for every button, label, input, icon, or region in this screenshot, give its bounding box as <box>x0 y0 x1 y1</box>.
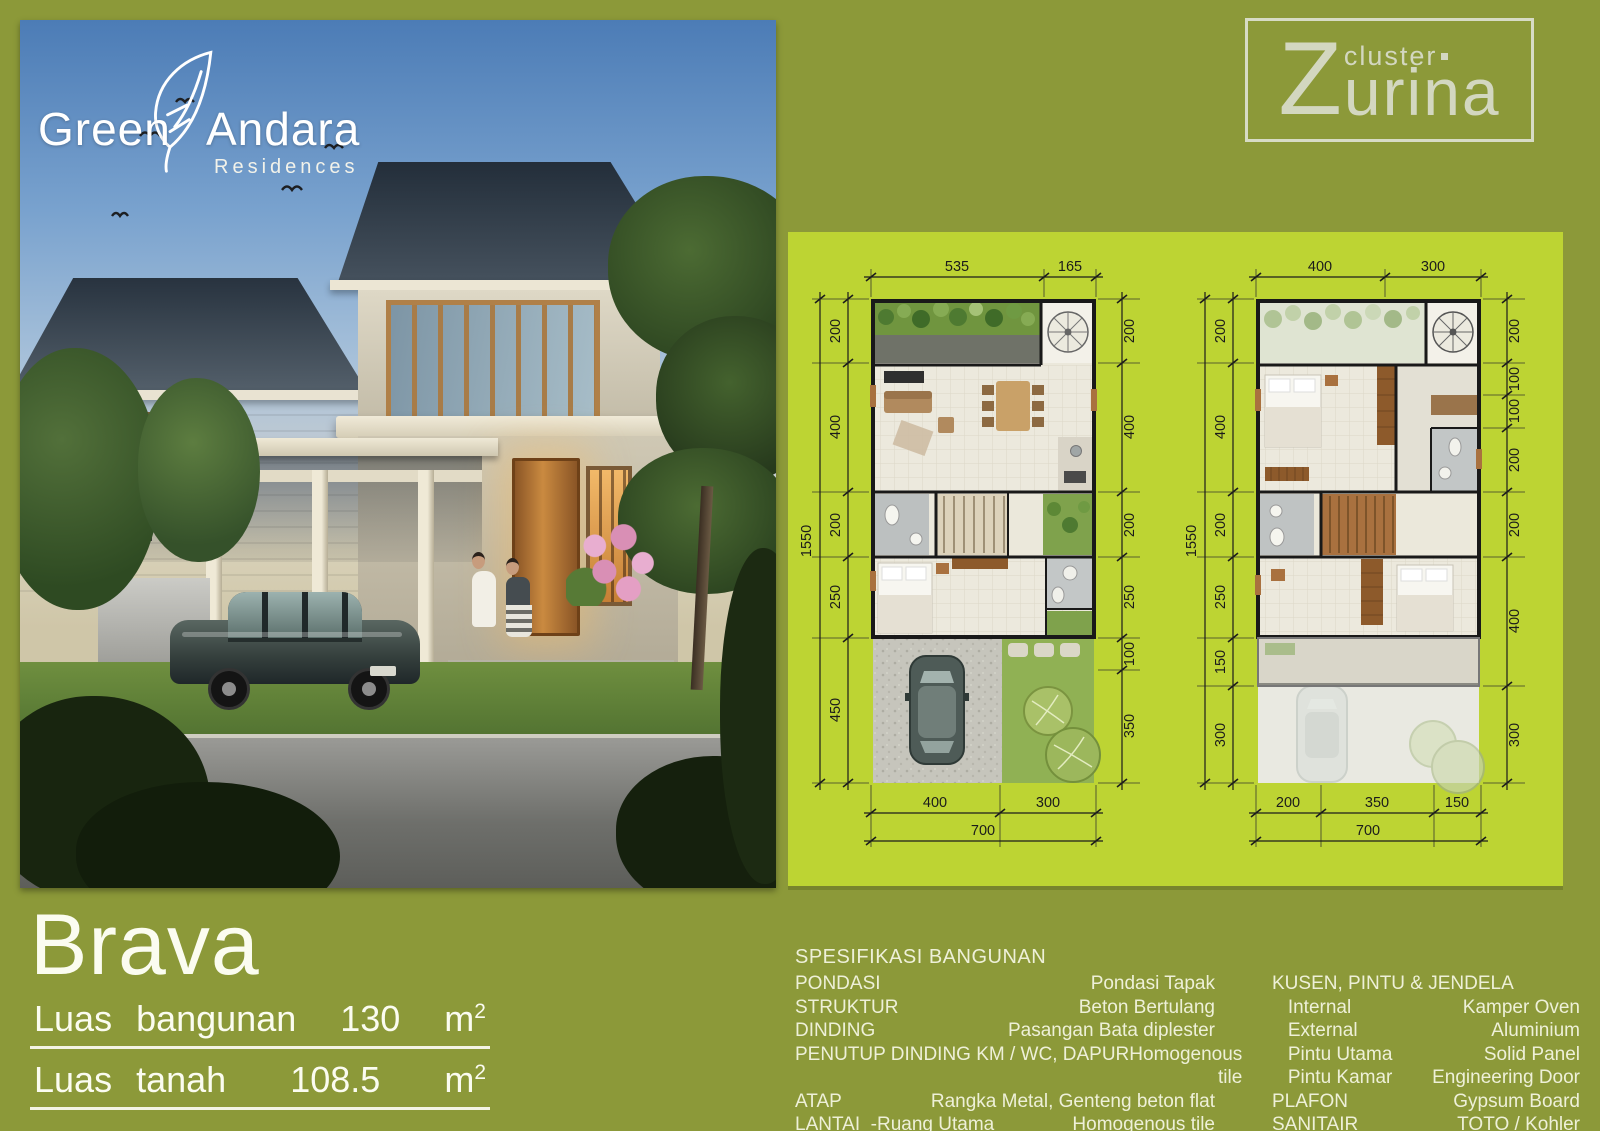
dim-label: 200 <box>1507 319 1523 343</box>
unit-name: Brava <box>30 902 490 988</box>
car-top-view <box>905 656 969 764</box>
area-unit: m2 <box>444 1059 486 1101</box>
carport-roof-ghost <box>1258 686 1484 793</box>
dim-label: 300 <box>1213 723 1229 747</box>
dim-label: 400 <box>1507 609 1523 633</box>
dim-label: 300 <box>1507 723 1523 747</box>
dim-label: 350 <box>1365 795 1389 811</box>
brand-word-andara: Andara <box>206 102 360 156</box>
car-wheel <box>208 668 250 710</box>
unit-title-block: Brava Luas bangunan 130 m2 Luas tanah 10… <box>30 902 490 1110</box>
person-head <box>506 558 519 575</box>
spiral-stair <box>1433 312 1473 352</box>
spec-row: Pintu UtamaSolid Panel <box>1272 1043 1580 1067</box>
dim-label: 150 <box>1213 650 1229 674</box>
person-skirt <box>506 605 532 637</box>
zurina-initial: Z <box>1278 39 1342 120</box>
area-label: Luas bangunan <box>34 998 296 1040</box>
area-value: 108.5 <box>290 1059 380 1101</box>
spec-row: LANTAI -Ruang UtamaHomogenous tile <box>795 1113 1215 1131</box>
tree <box>138 378 260 562</box>
canopy-slab <box>336 416 692 438</box>
dim-label: 400 <box>1122 415 1138 439</box>
dim-label: 200 <box>1507 513 1523 537</box>
car-hub <box>222 682 236 696</box>
person-dark-top <box>506 558 532 637</box>
spec-row: SANITAIRTOTO / Kohler <box>1272 1113 1580 1131</box>
cluster-zurina-badge: Z cluster urina <box>1245 18 1534 142</box>
dim-label: 200 <box>1213 513 1229 537</box>
dim-label: 200 <box>828 513 844 537</box>
area-unit: m2 <box>444 998 486 1040</box>
dim-label: 100 <box>1122 642 1138 666</box>
dim-label: 200 <box>1122 513 1138 537</box>
person-top <box>506 577 530 605</box>
area-row-building: Luas bangunan 130 m2 <box>30 988 490 1049</box>
person-white-dress <box>472 552 496 627</box>
dim-label: 300 <box>1421 259 1445 275</box>
dim-label: 400 <box>1308 259 1332 275</box>
spec-row: STRUKTURBeton Bertulang <box>795 996 1215 1020</box>
spec-row: PENUTUP DINDING KM / WC, DAPURHomogenous… <box>795 1043 1215 1090</box>
dim-label: 535 <box>945 259 969 275</box>
dim-label: 200 <box>1122 319 1138 343</box>
license-plate <box>370 666 396 676</box>
dim-label: 165 <box>1058 259 1082 275</box>
specs-left-column: PONDASIPondasi Tapak STRUKTURBeton Bertu… <box>795 972 1215 1131</box>
dim-label: 350 <box>1122 714 1138 738</box>
spec-row: ATAPRangka Metal, Genteng beton flat <box>795 1090 1215 1114</box>
person-dress <box>472 571 496 627</box>
pergola-post <box>418 470 434 682</box>
car-highlight <box>182 632 402 637</box>
spiral-stair <box>1048 312 1088 352</box>
dim-label: 400 <box>923 795 947 811</box>
dim-label: 1550 <box>799 525 815 557</box>
dim-label: 100 <box>1507 367 1523 391</box>
area-label: Luas tanah <box>34 1059 226 1101</box>
dim-label: 250 <box>828 585 844 609</box>
dim-label: 450 <box>828 698 844 722</box>
area-row-land: Luas tanah 108.5 m2 <box>30 1049 490 1110</box>
house-render-photo: Green Andara Residences <box>20 20 776 888</box>
floorplan-panel: 535 165 1550 200 400 200 250 450 200 400… <box>788 232 1563 886</box>
car-hub <box>362 682 376 696</box>
green-andara-logo: Green Andara Residences <box>38 56 398 206</box>
dim-label: 150 <box>1445 795 1469 811</box>
main-house-upper-window <box>386 300 600 426</box>
dim-label: 300 <box>1036 795 1060 811</box>
car <box>170 592 420 710</box>
upper-floor-plan: 400 300 1550 200 400 200 250 150 300 200… <box>1181 239 1541 879</box>
dim-label: 700 <box>1356 823 1380 839</box>
pink-flowers <box>566 520 662 606</box>
dim-label: 1550 <box>1184 525 1200 557</box>
spec-row: InternalKamper Oven <box>1272 996 1580 1020</box>
dim-label: 200 <box>1213 319 1229 343</box>
person-head <box>472 552 485 569</box>
dim-label: 700 <box>971 823 995 839</box>
specs-title: SPESIFIKASI BANGUNAN <box>795 946 1046 970</box>
area-value: 130 <box>340 998 400 1040</box>
spec-row: Pintu KamarEngineering Door <box>1272 1066 1580 1090</box>
ground-floor-plan: 535 165 1550 200 400 200 250 450 200 400… <box>796 239 1156 879</box>
brochure-page: Green Andara Residences Z cluster urina <box>0 0 1600 1131</box>
spec-row: DINDINGPasangan Bata diplester <box>795 1019 1215 1043</box>
specs-right-column: KUSEN, PINTU & JENDELA InternalKamper Ov… <box>1272 972 1580 1131</box>
dim-label: 400 <box>1213 415 1229 439</box>
brand-word-residences: Residences <box>214 156 359 179</box>
dim-label: 200 <box>1507 448 1523 472</box>
dim-label: 400 <box>828 415 844 439</box>
dim-label: 200 <box>1276 795 1300 811</box>
spec-row: ExternalAluminium <box>1272 1019 1580 1043</box>
dim-label: 100 <box>1507 399 1523 423</box>
dim-label: 200 <box>828 319 844 343</box>
dim-label: 250 <box>1213 585 1229 609</box>
dim-label: 250 <box>1122 585 1138 609</box>
zurina-rest: urina <box>1344 66 1501 119</box>
brand-word-green: Green <box>38 102 171 156</box>
spec-row: KUSEN, PINTU & JENDELA <box>1272 972 1580 996</box>
spec-row: PONDASIPondasi Tapak <box>795 972 1215 996</box>
spec-row: PLAFONGypsum Board <box>1272 1090 1580 1114</box>
